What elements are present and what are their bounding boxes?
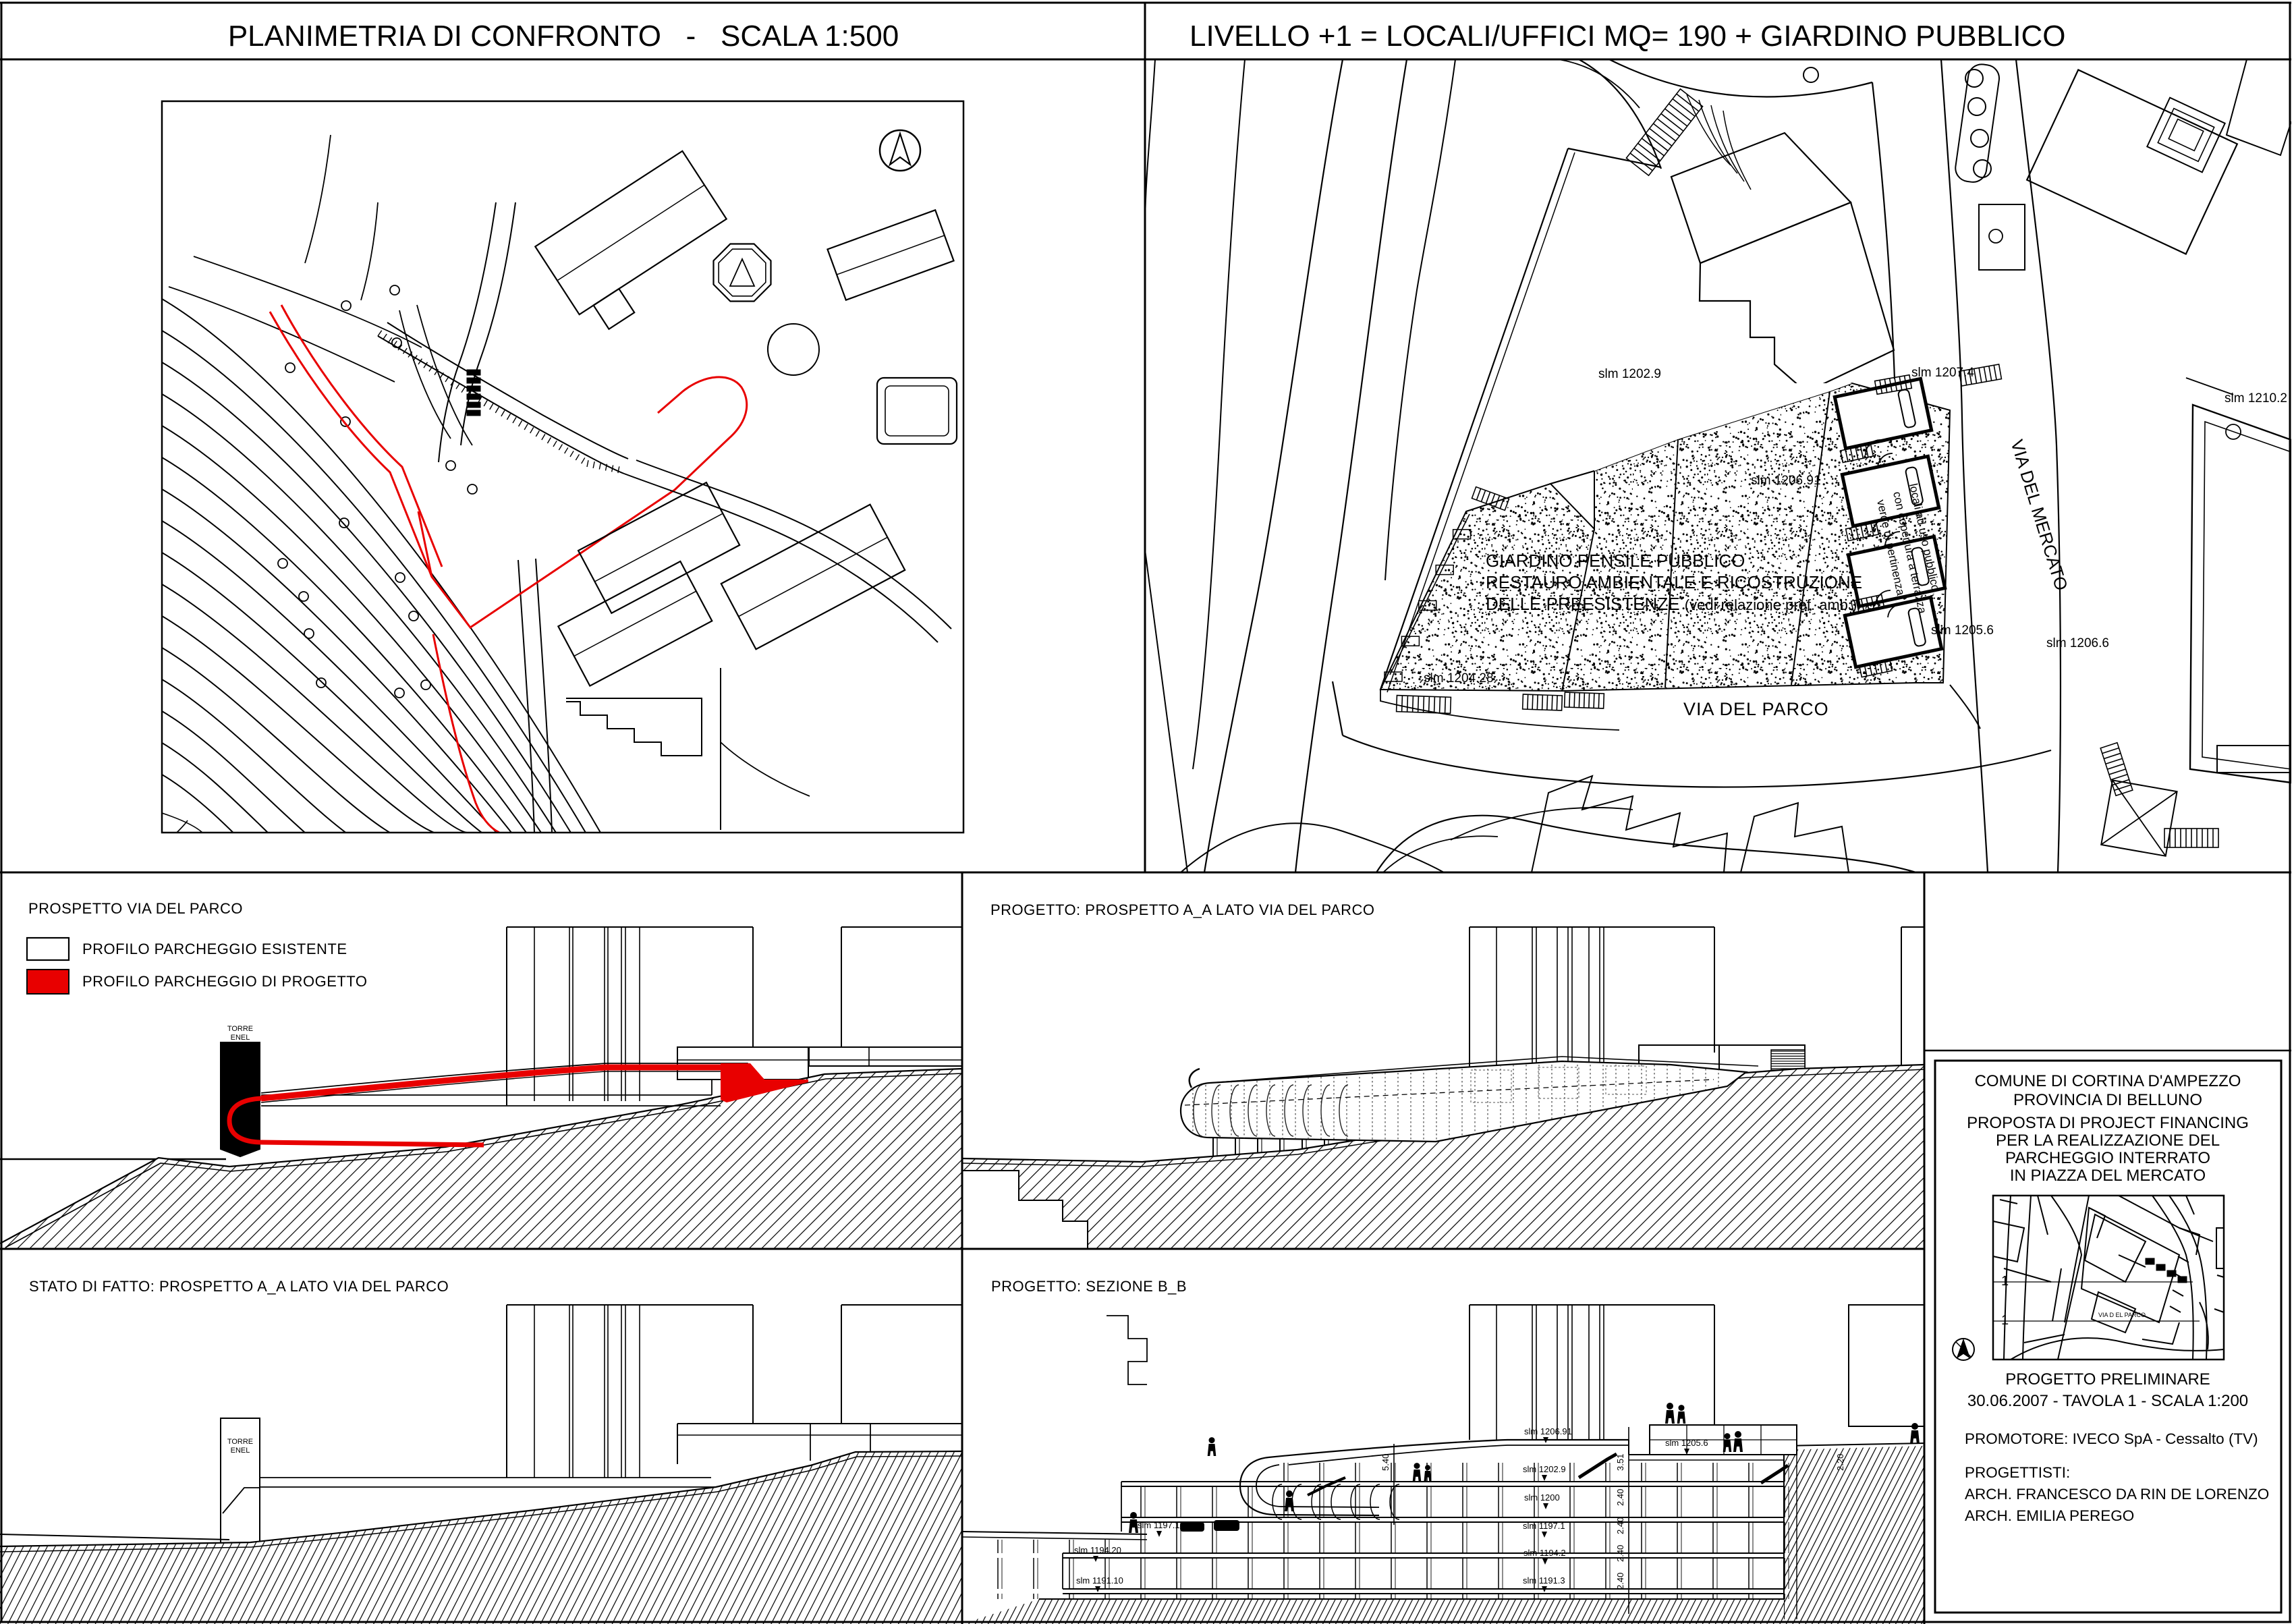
svg-text:slm 1194.20: slm 1194.20: [1074, 1545, 1121, 1555]
svg-text:PER LA REALIZZAZIONE DEL: PER LA REALIZZAZIONE DEL: [1996, 1131, 2220, 1150]
svg-text:slm 1202.9: slm 1202.9: [1598, 367, 1661, 381]
svg-text:slm 1197.1: slm 1197.1: [1523, 1521, 1565, 1531]
svg-text:3.51: 3.51: [1615, 1454, 1625, 1471]
svg-text:PLANIMETRIA DI CONFRONTO -: PLANIMETRIA DI CONFRONTO - SCALA 1:500: [228, 20, 899, 53]
svg-text:slm 1202.9: slm 1202.9: [1523, 1464, 1566, 1474]
svg-text:30.06.2007 - TAVOLA 1 - SCALA: 30.06.2007 - TAVOLA 1 - SCALA 1:200: [1967, 1392, 2248, 1410]
svg-text:VIA DEL PARCO: VIA DEL PARCO: [1683, 699, 1829, 719]
svg-text:slm 1205.6: slm 1205.6: [1931, 623, 1994, 638]
svg-text:PROGETTO: PROSPETTO A_A LATO V: PROGETTO: PROSPETTO A_A LATO VIA DEL PAR…: [990, 901, 1375, 918]
svg-text:PROGETTISTI:: PROGETTISTI:: [1965, 1464, 2070, 1481]
svg-text:slm 1191.3: slm 1191.3: [1523, 1575, 1565, 1586]
svg-text:slm 1200: slm 1200: [1524, 1492, 1560, 1503]
svg-text:slm 1204.28: slm 1204.28: [1424, 671, 1494, 685]
svg-text:RESTAURO AMBIENTALE E RICOSTRU: RESTAURO AMBIENTALE E RICOSTRUZIONE: [1486, 572, 1862, 592]
svg-text:slm 1205.6: slm 1205.6: [1665, 1438, 1708, 1448]
svg-text:slm 1210.2: slm 1210.2: [2225, 391, 2287, 405]
svg-text:slm 1197.10: slm 1197.10: [1138, 1520, 1185, 1530]
svg-text:PROGETTO PRELIMINARE: PROGETTO PRELIMINARE: [2005, 1370, 2210, 1389]
svg-text:slm 1206.91: slm 1206.91: [1524, 1426, 1572, 1436]
svg-text:PROGETTO: SEZIONE B_B: PROGETTO: SEZIONE B_B: [991, 1278, 1187, 1295]
svg-text:PROSPETTO VIA DEL PARCO: PROSPETTO VIA DEL PARCO: [28, 900, 243, 917]
svg-text:ARCH. FRANCESCO DA RIN DE LORE: ARCH. FRANCESCO DA RIN DE LORENZO: [1965, 1486, 2269, 1503]
svg-text:5.40: 5.40: [1380, 1454, 1391, 1471]
svg-text:STATO DI FATTO: PROSPETTO A_A: STATO DI FATTO: PROSPETTO A_A LATO VIA D…: [29, 1278, 449, 1295]
svg-text:PROMOTORE: IVECO SpA - Cessalt: PROMOTORE: IVECO SpA - Cessalto (TV): [1965, 1430, 2258, 1447]
svg-text:slm 1194.2: slm 1194.2: [1523, 1548, 1566, 1558]
svg-text:2.40: 2.40: [1615, 1517, 1625, 1534]
svg-text:ENEL: ENEL: [231, 1034, 250, 1042]
svg-text:ARCH. EMILIA PEREGO: ARCH. EMILIA PEREGO: [1965, 1507, 2134, 1524]
svg-text:COMUNE DI CORTINA D'AMPEZZO: COMUNE DI CORTINA D'AMPEZZO: [1975, 1072, 2241, 1090]
svg-text:TORRE: TORRE: [227, 1025, 253, 1033]
svg-text:IN PIAZZA DEL MERCATO: IN PIAZZA DEL MERCATO: [2010, 1167, 2206, 1185]
svg-text:ENEL: ENEL: [231, 1447, 250, 1455]
svg-text:slm 1206.91: slm 1206.91: [1751, 474, 1821, 488]
svg-text:2.40: 2.40: [1615, 1489, 1625, 1506]
svg-text:GIARDINO PENSILE PUBBLICO: GIARDINO PENSILE PUBBLICO: [1486, 551, 1745, 571]
svg-text:1: 1: [2001, 1313, 2009, 1328]
svg-text:1: 1: [2001, 1274, 2009, 1289]
svg-text:2.40: 2.40: [1615, 1545, 1625, 1562]
svg-text:LIVELLO +1 = LOCALI/UFFICI MQ=: LIVELLO +1 = LOCALI/UFFICI MQ= 190 + GIA…: [1190, 20, 2065, 53]
svg-text:slm 1191.10: slm 1191.10: [1076, 1575, 1123, 1586]
svg-text:slm 1206.6: slm 1206.6: [2046, 636, 2109, 650]
svg-text:PROVINCIA DI BELLUNO: PROVINCIA DI BELLUNO: [2013, 1091, 2202, 1109]
svg-text:VIA D EL PARCO: VIA D EL PARCO: [2098, 1312, 2146, 1318]
svg-text:PROFILO PARCHEGGIO DI PROGETTO: PROFILO PARCHEGGIO DI PROGETTO: [82, 973, 367, 990]
svg-text:PROFILO PARCHEGGIO ESISTENTE: PROFILO PARCHEGGIO ESISTENTE: [82, 941, 347, 957]
svg-text:DELLE PREESISTENZE (vedi relaz: DELLE PREESISTENZE (vedi relazione pref.…: [1486, 594, 1857, 614]
svg-text:PARCHEGGIO INTERRATO: PARCHEGGIO INTERRATO: [2005, 1149, 2210, 1167]
svg-text:2.20: 2.20: [1835, 1454, 1845, 1471]
svg-text:2.40: 2.40: [1615, 1573, 1625, 1590]
svg-text:TORRE: TORRE: [227, 1438, 253, 1446]
svg-text:PROPOSTA DI PROJECT FINANCING: PROPOSTA DI PROJECT FINANCING: [1967, 1114, 2249, 1132]
svg-text:slm 1207.4: slm 1207.4: [1911, 366, 1974, 380]
